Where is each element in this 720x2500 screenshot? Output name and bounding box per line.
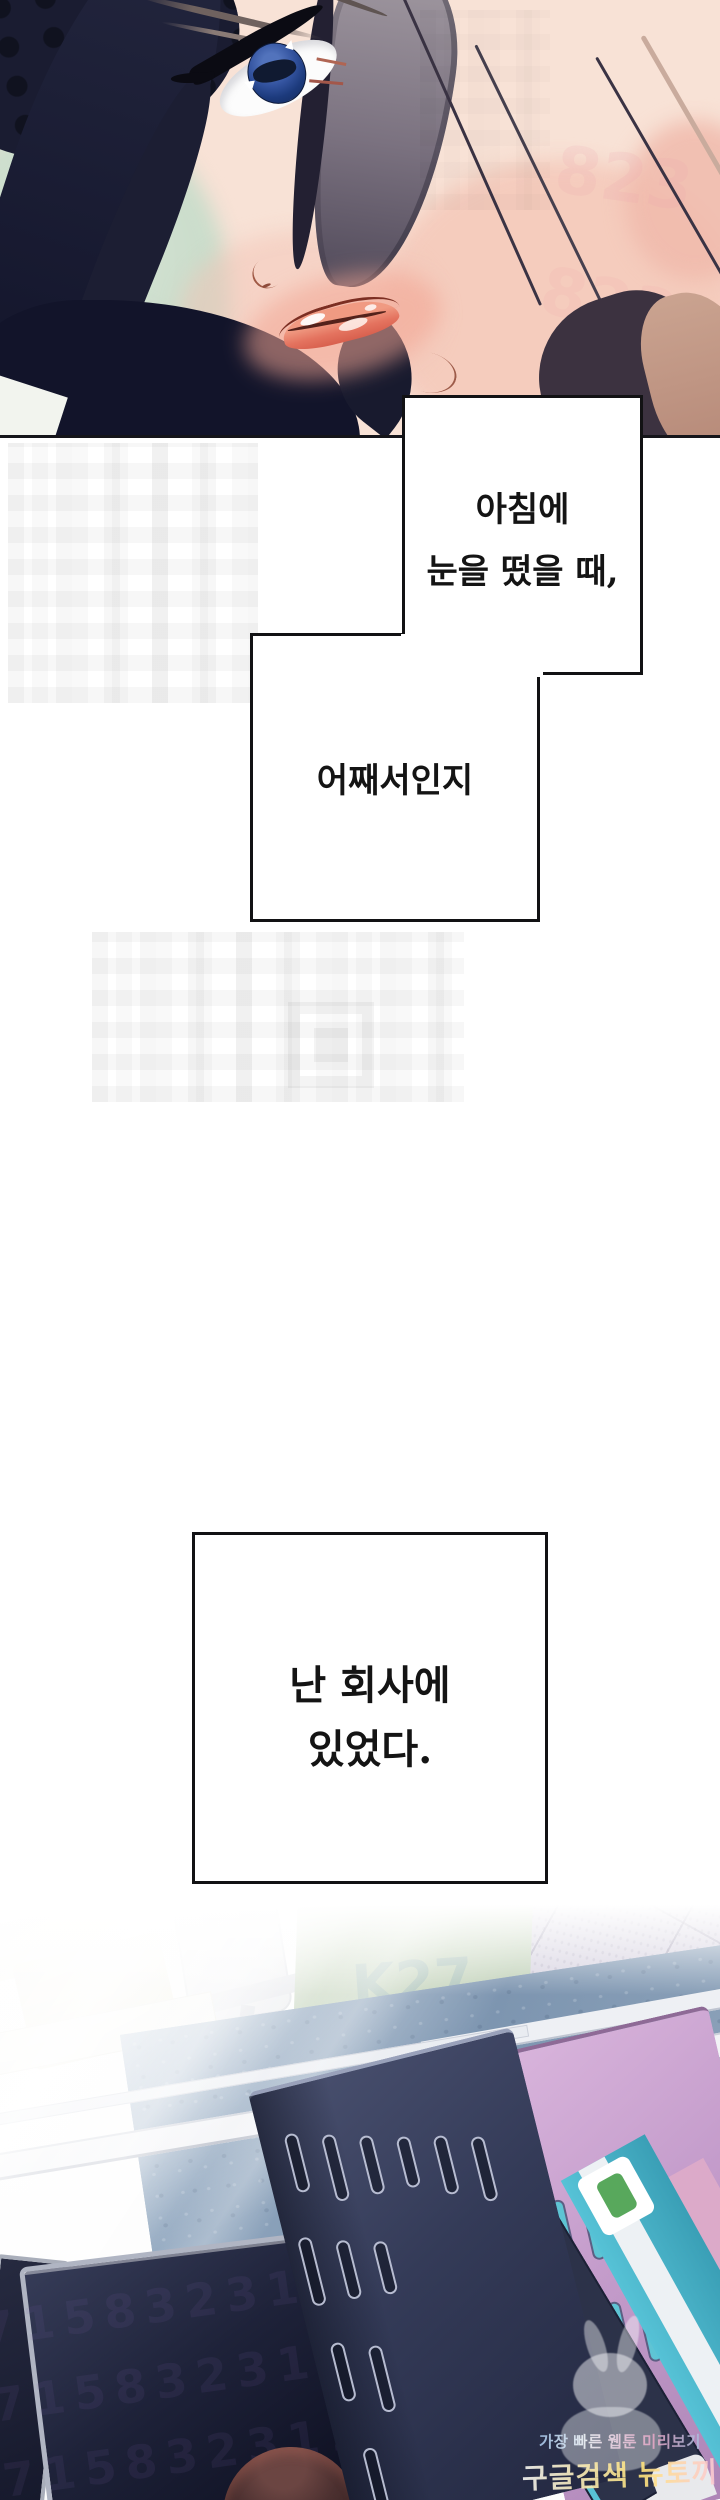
narration-box-3: 난 회사에 있었다. bbox=[192, 1532, 548, 1884]
label-green-mark bbox=[595, 2171, 639, 2220]
site-watermark-text: 가장 빠른 웹툰 미리보기 구글검색 뉴토끼 bbox=[515, 2430, 720, 2494]
narration-text: 있었다. bbox=[308, 1718, 432, 1782]
panel-office-scene: K27 bbox=[0, 1885, 720, 2500]
site-watermark-line1: 가장 빠른 웹툰 미리보기 bbox=[515, 2430, 720, 2452]
webtoon-page: 823 823 bbox=[0, 0, 720, 2500]
site-watermark-line2: 구글검색 뉴토끼 bbox=[514, 2450, 720, 2497]
anti-piracy-qr-faint bbox=[420, 10, 550, 210]
organizer-slot bbox=[395, 2135, 421, 2189]
narration-text: 난 회사에 bbox=[289, 1654, 450, 1718]
organizer-slot bbox=[432, 2134, 460, 2196]
narration-text: 눈을 떴을 때, bbox=[427, 541, 619, 603]
qr-finder-square bbox=[288, 1002, 374, 1088]
anti-piracy-qr-faint bbox=[92, 932, 464, 1102]
panel-face-closeup: 823 823 bbox=[0, 0, 720, 438]
narration-box-1: 아침에 눈을 떴을 때, bbox=[402, 395, 643, 675]
anti-piracy-qr-faint bbox=[8, 443, 258, 703]
organizer-slot bbox=[358, 2134, 386, 2196]
organizer-slot bbox=[470, 2135, 500, 2202]
narration-text: 어째서인지 bbox=[317, 753, 473, 802]
box-join-patch bbox=[401, 634, 543, 677]
narration-text: 아침에 bbox=[476, 479, 570, 541]
